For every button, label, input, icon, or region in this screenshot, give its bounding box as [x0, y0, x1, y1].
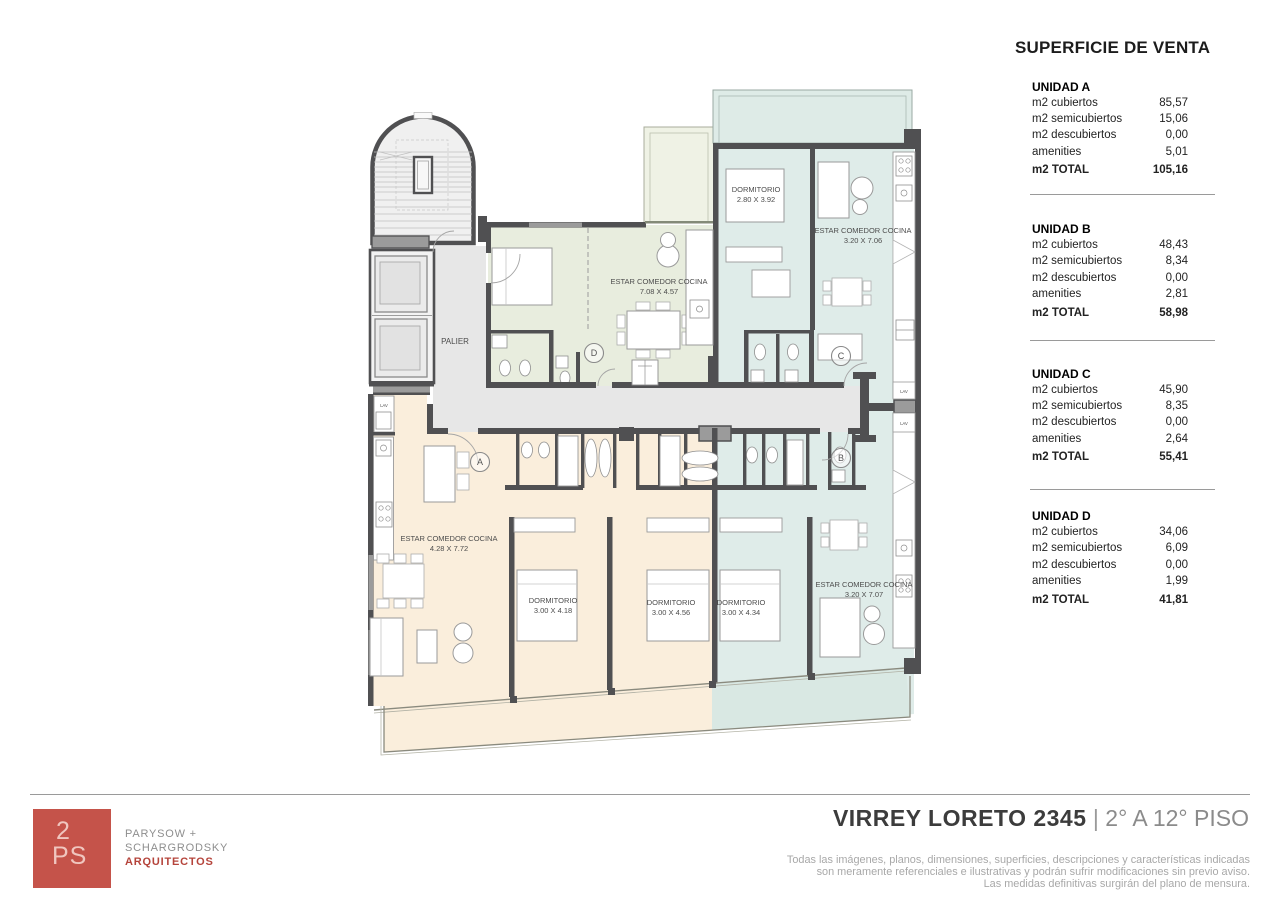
svg-text:3.20 X 7.06: 3.20 X 7.06	[844, 236, 882, 245]
svg-text:3.00 X 4.34: 3.00 X 4.34	[722, 608, 760, 617]
svg-text:LAV: LAV	[380, 403, 388, 408]
svg-text:3.20 X 7.07: 3.20 X 7.07	[845, 590, 883, 599]
svg-text:4.28 X 7.72: 4.28 X 7.72	[430, 544, 468, 553]
svg-text:D: D	[591, 348, 598, 358]
svg-text:LAV: LAV	[900, 389, 908, 394]
svg-text:C: C	[838, 351, 845, 361]
svg-text:PALIER: PALIER	[441, 337, 469, 346]
svg-text:DORMITORIO: DORMITORIO	[732, 185, 781, 194]
svg-text:A: A	[477, 457, 483, 467]
svg-text:DORMITORIO: DORMITORIO	[529, 596, 578, 605]
svg-text:ESTAR COMEDOR COCINA: ESTAR COMEDOR COCINA	[401, 534, 498, 543]
svg-text:3.00 X 4.56: 3.00 X 4.56	[652, 608, 690, 617]
svg-text:LAV: LAV	[900, 421, 908, 426]
svg-text:DORMITORIO: DORMITORIO	[717, 598, 766, 607]
svg-text:ESTAR COMEDOR COCINA: ESTAR COMEDOR COCINA	[611, 277, 708, 286]
svg-text:3.00 X 4.18: 3.00 X 4.18	[534, 606, 572, 615]
svg-text:ESTAR COMEDOR COCINA: ESTAR COMEDOR COCINA	[816, 580, 913, 589]
svg-text:DORMITORIO: DORMITORIO	[647, 598, 696, 607]
svg-text:B: B	[838, 453, 844, 463]
svg-text:ESTAR COMEDOR COCINA: ESTAR COMEDOR COCINA	[815, 226, 912, 235]
svg-text:2.80 X 3.92: 2.80 X 3.92	[737, 195, 775, 204]
svg-text:7.08 X 4.57: 7.08 X 4.57	[640, 287, 678, 296]
